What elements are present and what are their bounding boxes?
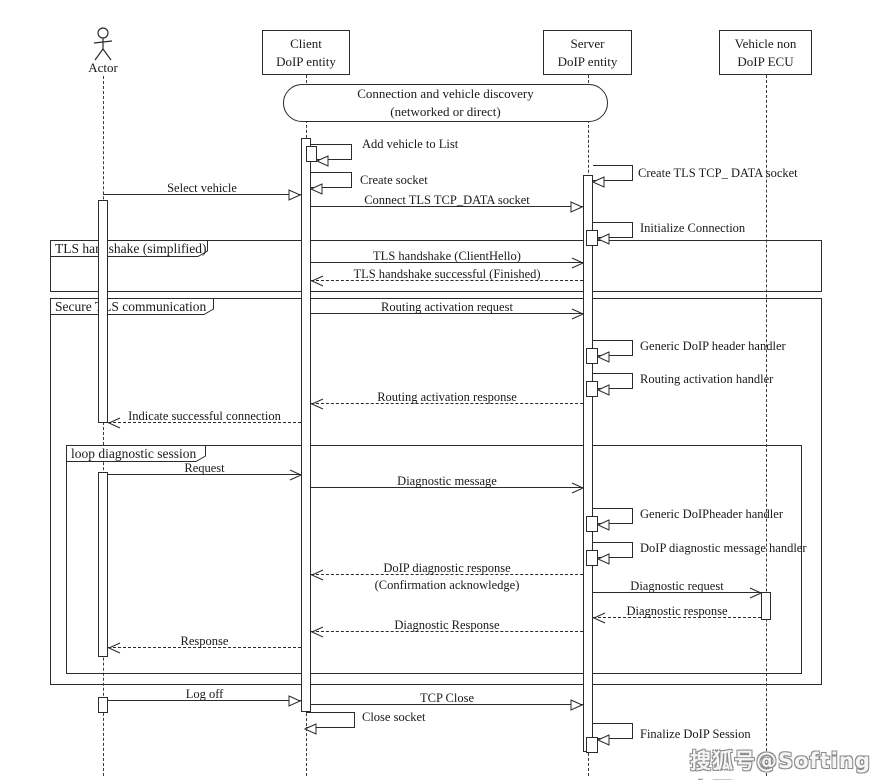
label-initialize-connection: Initialize Connection xyxy=(640,221,745,236)
watermark: 搜狐号@Softing中国 xyxy=(690,745,882,780)
label-close-socket: Close socket xyxy=(362,710,426,725)
label-diagnostic-message: Diagnostic message xyxy=(311,474,583,489)
frame-tls-handshake-tab: TLS handshake (simplified) xyxy=(50,240,208,257)
discovery-pill-line2: (networked or direct) xyxy=(390,103,500,121)
nested-activation-initialize xyxy=(586,230,598,246)
participant-ecu-line2: DoIP ECU xyxy=(737,53,793,71)
label-add-vehicle: Add vehicle to List xyxy=(362,137,458,152)
label-routing-request: Routing activation request xyxy=(311,300,583,315)
label-routing-response: Routing activation response xyxy=(311,390,583,405)
actor-activation-3 xyxy=(98,697,108,713)
nested-activation-generic-header-2 xyxy=(586,516,598,532)
frame-secure-tls-label: Secure TLS communication xyxy=(50,298,214,315)
actor-name: Actor xyxy=(73,60,133,76)
label-request: Request xyxy=(108,461,301,476)
client-activation xyxy=(301,138,311,712)
discovery-pill-line1: Connection and vehicle discovery xyxy=(357,85,534,103)
label-routing-handler: Routing activation handler xyxy=(640,372,773,387)
actor-activation-1 xyxy=(98,200,108,423)
label-tls-client-hello: TLS handshake (ClientHello) xyxy=(311,249,583,264)
label-diagnostic-request: Diagnostic request xyxy=(593,579,761,594)
label-confirmation-acknowledge: (Confirmation acknowledge) xyxy=(311,578,583,593)
participant-server-line1: Server xyxy=(571,35,605,53)
nested-activation-routing-handler xyxy=(586,381,598,397)
participant-client-line2: DoIP entity xyxy=(276,53,336,71)
label-generic-header-2: Generic DoIPheader handler xyxy=(640,507,783,522)
label-doip-diagnostic-response: DoIP diagnostic response xyxy=(311,561,583,576)
arrowhead-close-socket xyxy=(304,722,317,734)
nested-activation-finalize xyxy=(586,737,598,753)
participant-client: Client DoIP entity xyxy=(262,30,350,75)
label-finalize: Finalize DoIP Session xyxy=(640,727,751,742)
actor-activation-2 xyxy=(98,472,108,657)
label-connect-tls: Connect TLS TCP_DATA socket xyxy=(311,193,583,208)
arrowhead-routing-handler xyxy=(597,383,610,395)
participant-server: Server DoIP entity xyxy=(543,30,632,75)
label-diagnostic-response-ecu: Diagnostic response xyxy=(593,604,761,619)
frame-loop-tab: loop diagnostic session xyxy=(66,445,206,462)
label-select-vehicle: Select vehicle xyxy=(103,181,301,196)
arrowhead-finalize xyxy=(597,733,610,745)
label-diagnostic-response: Diagnostic Response xyxy=(311,618,583,633)
participant-client-line1: Client xyxy=(290,35,322,53)
label-diag-msg-handler: DoIP diagnostic message handler xyxy=(640,541,807,556)
label-tcp-close: TCP Close xyxy=(311,691,583,706)
arrowhead-add-vehicle xyxy=(316,154,329,166)
frame-secure-tls-tab: Secure TLS communication xyxy=(50,298,214,315)
arrowhead-diag-msg-handler xyxy=(597,552,610,564)
server-activation xyxy=(583,175,593,752)
label-tls-finished: TLS handshake successful (Finished) xyxy=(311,267,583,282)
participant-ecu: Vehicle non DoIP ECU xyxy=(719,30,812,75)
participant-server-line2: DoIP entity xyxy=(558,53,618,71)
arrowhead-create-tls-socket xyxy=(592,175,605,187)
nested-activation-generic-header-1 xyxy=(586,348,598,364)
discovery-pill: Connection and vehicle discovery (networ… xyxy=(283,84,608,122)
arrowhead-initialize-connection xyxy=(597,232,610,244)
label-generic-header-1: Generic DoIP header handler xyxy=(640,339,786,354)
frame-tls-handshake-label: TLS handshake (simplified) xyxy=(50,240,208,257)
frame-loop-label: loop diagnostic session xyxy=(66,445,206,462)
label-create-tls-socket: Create TLS TCP_ DATA socket xyxy=(638,166,798,181)
label-create-socket: Create socket xyxy=(360,173,428,188)
ecu-activation xyxy=(761,592,771,620)
arrowhead-generic-header-1 xyxy=(597,350,610,362)
arrowhead-generic-header-2 xyxy=(597,518,610,530)
nested-activation-add-vehicle xyxy=(306,146,317,162)
sequence-diagram: TLS handshake (simplified) Secure TLS co… xyxy=(0,0,882,780)
label-response: Response xyxy=(108,634,301,649)
label-log-off: Log off xyxy=(108,687,301,702)
label-indicate-success: Indicate successful connection xyxy=(108,409,301,424)
actor-icon xyxy=(90,26,116,62)
participant-ecu-line1: Vehicle non xyxy=(735,35,797,53)
nested-activation-diag-msg-handler xyxy=(586,550,598,566)
